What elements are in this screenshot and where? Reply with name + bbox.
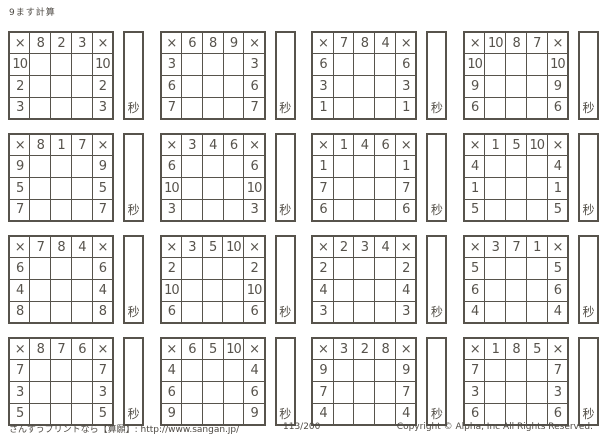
right-factor-cell: 6 [244,76,265,98]
left-factor-cell: 7 [9,360,30,382]
left-factor-cell: 2 [161,258,182,280]
answer-cell [526,382,547,404]
grid-row: 6 6 [312,54,416,76]
grid-row: 7 7 [312,178,416,200]
answer-cell [354,54,375,76]
right-factor-cell: 5 [92,178,113,200]
top-factor-cell: 1 [51,134,72,156]
answer-cell [354,382,375,404]
multiplication-grid: × 7 8 4 × 6 6 4 4 8 [8,235,144,324]
seconds-label: 秒 [279,405,291,422]
answer-cell [506,280,527,302]
grid-row: 2 2 [312,258,416,280]
top-factor-cell: 9 [223,32,244,54]
multiply-sign: × [244,236,265,258]
left-factor-cell: 6 [161,156,182,178]
answer-cell [71,178,92,200]
seconds-box: 秒 [123,337,144,426]
grid-table: × 8 2 3 × 10 10 2 2 3 [8,31,114,120]
multiplication-grid: × 8 7 6 × 7 7 3 3 5 [8,337,144,426]
top-factor-cell: 8 [30,338,51,360]
multiply-sign: × [92,134,113,156]
seconds-label: 秒 [431,303,443,320]
seconds-box: 秒 [426,31,447,120]
answer-cell [506,199,527,221]
answer-cell [333,258,354,280]
answer-cell [202,382,223,404]
answer-cell [71,199,92,221]
answer-cell [223,382,244,404]
seconds-label: 秒 [279,201,291,218]
grid-header-row: × 7 8 4 × [9,236,113,258]
multiply-sign: × [312,134,333,156]
grid-row: 7 7 [9,199,113,221]
answer-cell [30,97,51,119]
top-factor-cell: 10 [526,134,547,156]
grid-header-row: × 3 2 8 × [312,338,416,360]
answer-cell [526,156,547,178]
answer-cell [485,199,506,221]
grid-row: 6 6 [161,156,265,178]
answer-cell [375,258,396,280]
seconds-box: 秒 [426,235,447,324]
multiply-sign: × [161,32,182,54]
answer-cell [71,97,92,119]
answer-cell [506,97,527,119]
answer-cell [202,360,223,382]
answer-cell [354,301,375,323]
answer-cell [506,76,527,98]
grid-header-row: × 1 4 6 × [312,134,416,156]
multiply-sign: × [396,32,417,54]
grid-row: 9 9 [312,360,416,382]
top-factor-cell: 7 [71,134,92,156]
answer-cell [182,156,203,178]
answer-cell [506,178,527,200]
grid-row: 4 4 [312,280,416,302]
right-factor-cell: 7 [92,199,113,221]
answer-cell [526,76,547,98]
left-factor-cell: 4 [464,301,485,323]
seconds-box: 秒 [426,133,447,222]
left-factor-cell: 1 [312,156,333,178]
seconds-box: 秒 [275,31,296,120]
answer-cell [202,301,223,323]
left-factor-cell: 3 [312,76,333,98]
seconds-label: 秒 [583,99,595,116]
answer-cell [51,258,72,280]
answer-cell [71,156,92,178]
grid-table: × 1 5 10 × 4 4 1 1 5 [463,133,569,222]
top-factor-cell: 6 [182,32,203,54]
grid-table: × 6 8 9 × 3 3 6 6 7 [160,31,266,120]
multiplication-grid: × 2 3 4 × 2 2 4 4 3 [311,235,447,324]
left-factor-cell: 6 [464,280,485,302]
answer-cell [506,382,527,404]
seconds-label: 秒 [583,201,595,218]
answer-cell [223,360,244,382]
answer-cell [202,280,223,302]
answer-cell [223,76,244,98]
answer-cell [71,54,92,76]
seconds-box: 秒 [123,133,144,222]
grid-header-row: × 3 4 6 × [161,134,265,156]
top-factor-cell: 5 [526,338,547,360]
left-factor-cell: 6 [161,76,182,98]
answer-cell [333,156,354,178]
grid-row: 3 3 [312,76,416,98]
answer-cell [485,382,506,404]
seconds-box: 秒 [578,31,599,120]
left-factor-cell: 10 [464,54,485,76]
right-factor-cell: 1 [396,97,417,119]
top-factor-cell: 3 [354,236,375,258]
multiply-sign: × [464,32,485,54]
answer-cell [51,178,72,200]
answer-cell [375,360,396,382]
multiply-sign: × [396,236,417,258]
right-factor-cell: 1 [396,156,417,178]
answer-cell [30,301,51,323]
answer-cell [182,199,203,221]
answer-cell [202,54,223,76]
grid-row: 2 2 [9,76,113,98]
grid-table: × 2 3 4 × 2 2 4 4 3 [311,235,417,324]
left-factor-cell: 4 [9,280,30,302]
multiplication-grid: × 3 4 6 × 6 6 10 10 3 [160,133,296,222]
grid-table: × 6 5 10 × 4 4 6 6 9 [160,337,266,426]
answer-cell [485,258,506,280]
top-factor-cell: 6 [71,338,92,360]
seconds-label: 秒 [128,99,140,116]
grid-row: 7 7 [464,360,568,382]
top-factor-cell: 4 [375,236,396,258]
answer-cell [506,156,527,178]
grids-container: × 8 2 3 × 10 10 2 2 3 [8,31,599,426]
answer-cell [333,76,354,98]
answer-cell [30,199,51,221]
multiplication-grid: × 6 5 10 × 4 4 6 6 9 [160,337,296,426]
right-factor-cell: 7 [92,360,113,382]
top-factor-cell: 8 [506,32,527,54]
grid-row: 7 7 [9,360,113,382]
multiply-sign: × [161,236,182,258]
answer-cell [485,54,506,76]
right-factor-cell: 7 [396,382,417,404]
right-factor-cell: 6 [92,258,113,280]
multiplication-grid: × 8 2 3 × 10 10 2 2 3 [8,31,144,120]
right-factor-cell: 3 [396,76,417,98]
grid-header-row: × 6 5 10 × [161,338,265,360]
top-factor-cell: 6 [223,134,244,156]
multiply-sign: × [244,338,265,360]
grid-row: 6 6 [161,301,265,323]
right-factor-cell: 6 [547,280,568,302]
multiply-sign: × [464,236,485,258]
answer-cell [375,199,396,221]
answer-cell [354,76,375,98]
right-factor-cell: 2 [396,258,417,280]
seconds-label: 秒 [431,99,443,116]
answer-cell [526,280,547,302]
multiply-sign: × [396,338,417,360]
right-factor-cell: 6 [244,382,265,404]
grid-row: 3 3 [9,97,113,119]
seconds-label: 秒 [431,201,443,218]
grid-header-row: × 8 7 6 × [9,338,113,360]
grid-row: 3 3 [464,382,568,404]
answer-cell [182,280,203,302]
grid-row: 1 1 [312,97,416,119]
answer-cell [51,156,72,178]
answer-cell [181,382,202,404]
right-factor-cell: 4 [547,156,568,178]
right-factor-cell: 6 [396,54,417,76]
answer-cell [30,76,51,98]
grid-row: 6 6 [9,258,113,280]
answer-cell [202,76,223,98]
answer-cell [223,178,244,200]
left-factor-cell: 6 [9,258,30,280]
top-factor-cell: 4 [202,134,223,156]
top-factor-cell: 8 [30,134,51,156]
top-factor-cell: 6 [375,134,396,156]
answer-cell [202,199,223,221]
right-factor-cell: 10 [547,54,568,76]
top-factor-cell: 5 [506,134,527,156]
left-factor-cell: 6 [464,97,485,119]
grid-table: × 3 2 8 × 9 9 7 7 4 [311,337,417,426]
top-factor-cell: 5 [202,338,223,360]
answer-cell [333,199,354,221]
seconds-label: 秒 [279,99,291,116]
multiply-sign: × [547,134,568,156]
answer-cell [526,97,547,119]
left-factor-cell: 7 [464,360,485,382]
grid-row: 10 10 [464,54,568,76]
answer-cell [71,301,92,323]
multiply-sign: × [464,134,485,156]
answer-cell [526,301,547,323]
left-factor-cell: 4 [161,360,182,382]
answer-cell [30,156,51,178]
grid-header-row: × 8 2 3 × [9,32,113,54]
left-factor-cell: 7 [312,382,333,404]
left-factor-cell: 7 [312,178,333,200]
seconds-label: 秒 [583,303,595,320]
grid-table: × 3 4 6 × 6 6 10 10 3 [160,133,266,222]
grid-row: 2 2 [161,258,265,280]
answer-cell [51,382,72,404]
top-factor-cell: 1 [333,134,354,156]
right-factor-cell: 10 [244,178,265,200]
multiply-sign: × [244,134,265,156]
top-factor-cell: 8 [202,32,223,54]
answer-cell [51,76,72,98]
answer-cell [223,258,244,280]
grid-table: × 3 5 10 × 2 2 10 10 6 [160,235,266,324]
right-factor-cell: 6 [396,199,417,221]
left-factor-cell: 9 [464,76,485,98]
left-factor-cell: 9 [312,360,333,382]
left-factor-cell: 4 [312,280,333,302]
answer-cell [485,76,506,98]
answer-cell [375,178,396,200]
right-factor-cell: 10 [92,54,113,76]
footer-source-text: さんすうプリントなら【算願】: http://www.sangan.jp/ [9,422,239,435]
answer-cell [506,301,527,323]
seconds-box: 秒 [123,31,144,120]
grid-header-row: × 7 8 4 × [312,32,416,54]
left-factor-cell: 3 [312,301,333,323]
answer-cell [30,54,51,76]
grid-table: × 7 8 4 × 6 6 4 4 8 [8,235,114,324]
left-factor-cell: 3 [464,382,485,404]
grid-row: 1 1 [464,178,568,200]
multiply-sign: × [161,338,182,360]
top-factor-cell: 3 [182,236,203,258]
grid-header-row: × 1 8 5 × [464,338,568,360]
multiplication-grid: × 3 5 10 × 2 2 10 10 6 [160,235,296,324]
top-factor-cell: 2 [333,236,354,258]
right-factor-cell: 3 [547,382,568,404]
grid-row: 4 4 [9,280,113,302]
left-factor-cell: 6 [161,382,182,404]
seconds-label: 秒 [128,201,140,218]
multiply-sign: × [244,32,265,54]
seconds-box: 秒 [426,337,447,426]
answer-cell [485,178,506,200]
left-factor-cell: 6 [312,199,333,221]
multiplication-grid: × 1 5 10 × 4 4 1 1 5 [463,133,599,222]
grid-row: 7 7 [161,97,265,119]
grid-row: 5 5 [464,258,568,280]
grid-row: 6 6 [161,382,265,404]
seconds-box: 秒 [275,133,296,222]
grid-header-row: × 3 5 10 × [161,236,265,258]
answer-cell [526,258,547,280]
grid-row: 9 9 [464,76,568,98]
grid-table: × 1 4 6 × 1 1 7 7 6 [311,133,417,222]
answer-cell [182,178,203,200]
seconds-box: 秒 [578,337,599,426]
seconds-box: 秒 [275,235,296,324]
footer-copyright: Copyright © Alpha, Inc All Rights Reserv… [397,422,593,432]
answer-cell [375,156,396,178]
multiply-sign: × [396,134,417,156]
multiplication-grid: × 3 7 1 × 5 5 6 6 4 [463,235,599,324]
answer-cell [333,97,354,119]
grid-row: 9 9 [9,156,113,178]
right-factor-cell: 9 [396,360,417,382]
grid-table: × 3 7 1 × 5 5 6 6 4 [463,235,569,324]
multiplication-grid: × 3 2 8 × 9 9 7 7 4 [311,337,447,426]
answer-cell [181,360,202,382]
top-factor-cell: 1 [485,134,506,156]
top-factor-cell: 7 [526,32,547,54]
grid-row: 6 6 [312,199,416,221]
left-factor-cell: 10 [161,178,182,200]
grid-header-row: × 2 3 4 × [312,236,416,258]
multiply-sign: × [547,32,568,54]
top-factor-cell: 8 [30,32,51,54]
answer-cell [202,178,223,200]
grid-row: 4 4 [464,156,568,178]
answer-cell [354,360,375,382]
answer-cell [375,54,396,76]
top-factor-cell: 4 [71,236,92,258]
seconds-label: 秒 [279,303,291,320]
right-factor-cell: 4 [396,280,417,302]
answer-cell [182,258,203,280]
answer-cell [375,382,396,404]
answer-cell [333,178,354,200]
grid-row: 1 1 [312,156,416,178]
right-factor-cell: 3 [396,301,417,323]
answer-cell [51,280,72,302]
top-factor-cell: 2 [354,338,375,360]
answer-cell [223,301,244,323]
left-factor-cell: 3 [161,199,182,221]
answer-cell [485,360,506,382]
answer-cell [354,258,375,280]
grid-row: 10 10 [161,178,265,200]
answer-cell [485,280,506,302]
answer-cell [354,199,375,221]
right-factor-cell: 1 [547,178,568,200]
top-factor-cell: 7 [506,236,527,258]
grid-row: 4 4 [161,360,265,382]
answer-cell [51,199,72,221]
grid-row: 3 3 [161,199,265,221]
answer-cell [354,97,375,119]
answer-cell [223,97,244,119]
left-factor-cell: 5 [464,258,485,280]
seconds-box: 秒 [123,235,144,324]
left-factor-cell: 3 [9,97,30,119]
multiplication-grid: × 6 8 9 × 3 3 6 6 7 [160,31,296,120]
top-factor-cell: 10 [223,236,244,258]
answer-cell [354,178,375,200]
top-factor-cell: 6 [181,338,202,360]
seconds-label: 秒 [583,405,595,422]
grid-row: 10 10 [161,280,265,302]
top-factor-cell: 3 [333,338,354,360]
answer-cell [375,301,396,323]
right-factor-cell: 2 [244,258,265,280]
multiplication-grid: × 1 8 5 × 7 7 3 3 6 [463,337,599,426]
answer-cell [333,54,354,76]
grid-row: 3 3 [9,382,113,404]
answer-cell [506,54,527,76]
top-factor-cell: 2 [51,32,72,54]
left-factor-cell: 6 [161,301,182,323]
answer-cell [30,360,51,382]
left-factor-cell: 1 [464,178,485,200]
answer-cell [182,301,203,323]
answer-cell [202,156,223,178]
top-factor-cell: 3 [485,236,506,258]
right-factor-cell: 4 [92,280,113,302]
grid-table: × 8 1 7 × 9 9 5 5 7 [8,133,114,222]
multiply-sign: × [464,338,485,360]
top-factor-cell: 1 [526,236,547,258]
multiply-sign: × [547,338,568,360]
right-factor-cell: 8 [92,301,113,323]
left-factor-cell: 2 [9,76,30,98]
top-factor-cell: 7 [333,32,354,54]
footer: さんすうプリントなら【算願】: http://www.sangan.jp/ 11… [9,422,593,433]
